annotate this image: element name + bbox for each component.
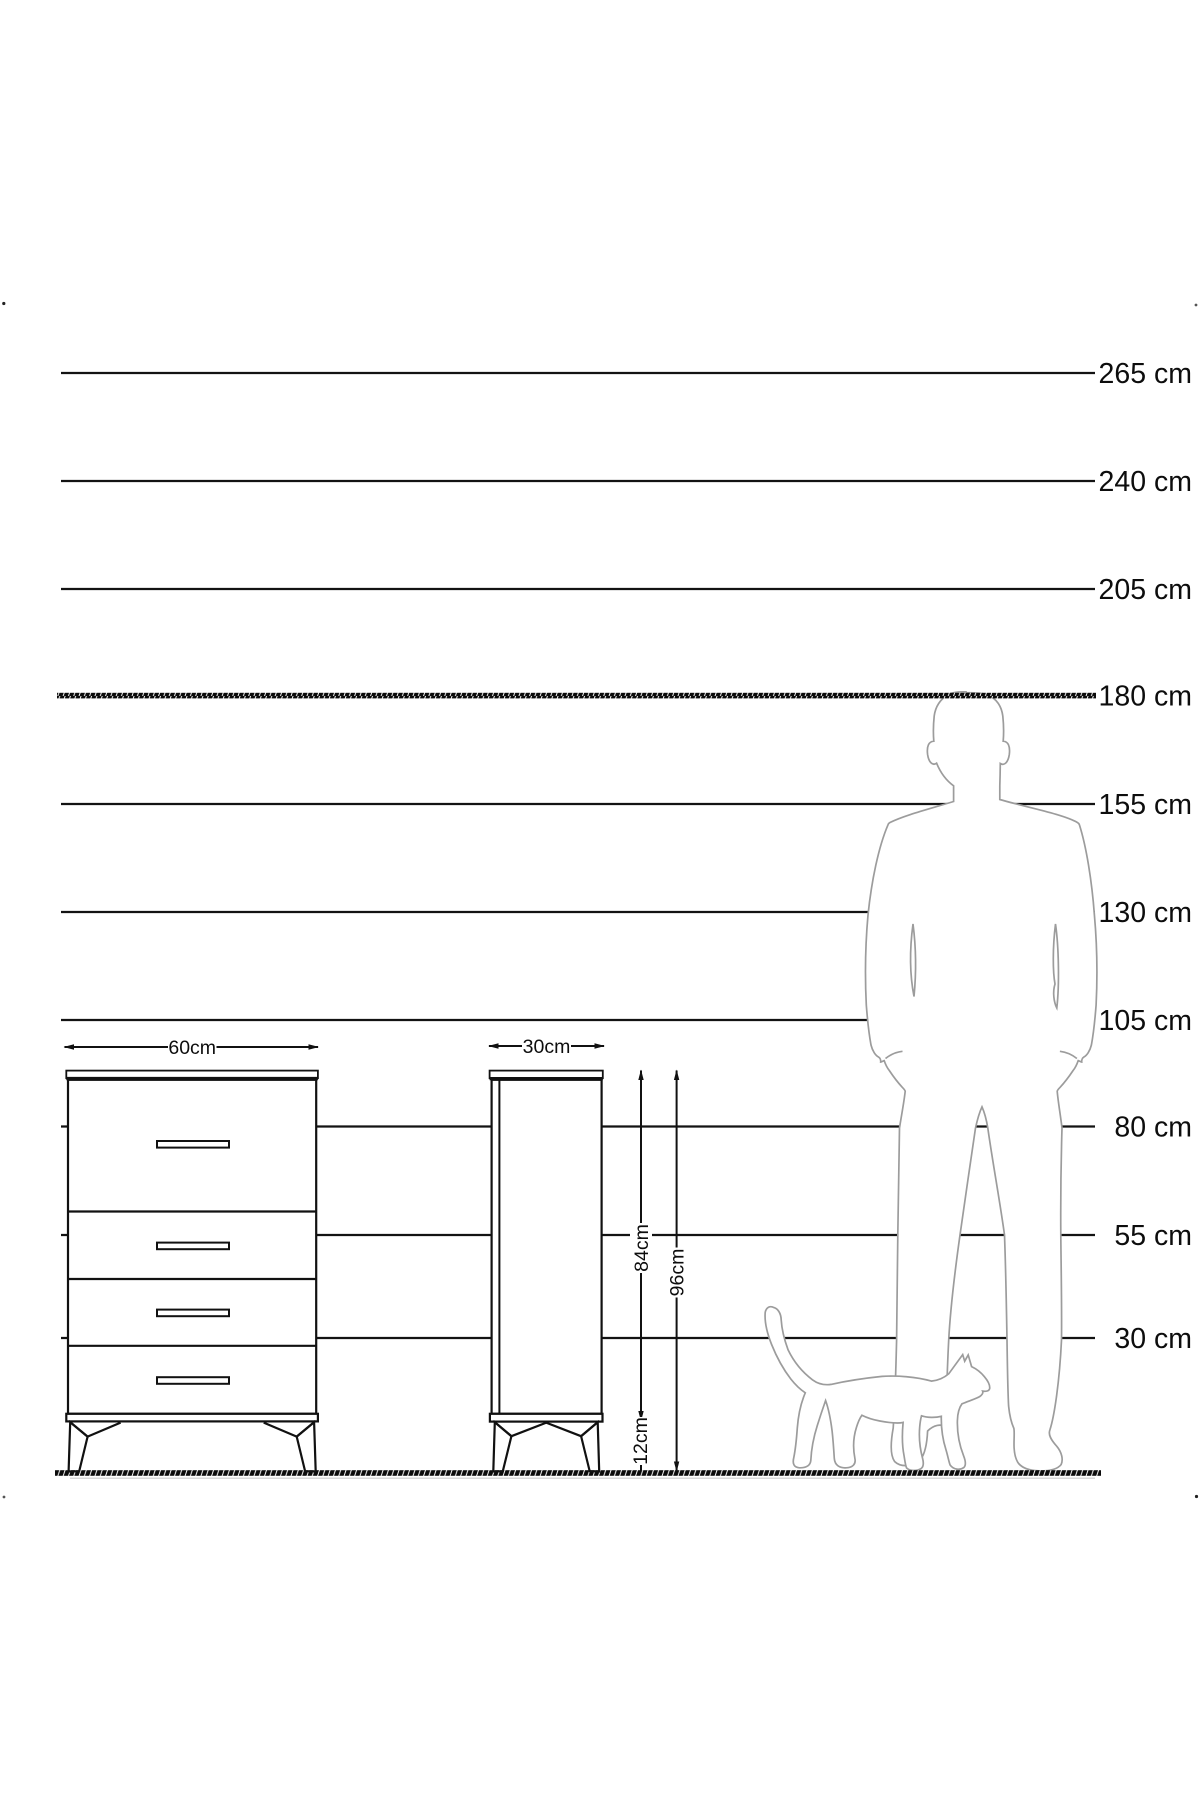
svg-text:84cm: 84cm	[631, 1224, 653, 1272]
svg-text:205 cm: 205 cm	[1099, 574, 1192, 606]
svg-text:30 cm: 30 cm	[1114, 1323, 1192, 1355]
svg-text:60cm: 60cm	[168, 1037, 216, 1059]
svg-text:265 cm: 265 cm	[1099, 358, 1192, 390]
svg-text:130 cm: 130 cm	[1099, 897, 1192, 929]
svg-text:105 cm: 105 cm	[1099, 1005, 1192, 1037]
svg-text:55 cm: 55 cm	[1114, 1220, 1192, 1252]
svg-text:30cm: 30cm	[523, 1036, 571, 1058]
svg-text:240 cm: 240 cm	[1099, 466, 1192, 498]
svg-text:12cm: 12cm	[630, 1417, 652, 1465]
svg-text:96cm: 96cm	[666, 1249, 688, 1297]
svg-text:180 cm: 180 cm	[1099, 681, 1192, 713]
svg-text:155 cm: 155 cm	[1099, 789, 1192, 821]
svg-text:80 cm: 80 cm	[1114, 1112, 1192, 1144]
